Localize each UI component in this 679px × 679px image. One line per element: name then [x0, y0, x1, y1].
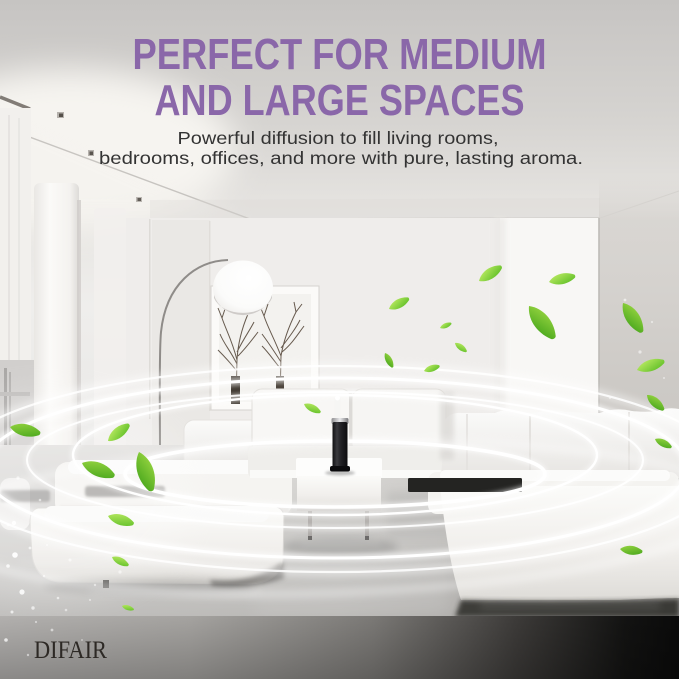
svg-text:AND LARGE SPACES: AND LARGE SPACES [155, 76, 525, 125]
svg-text:bedrooms, offices, and more wi: bedrooms, offices, and more with pure, l… [99, 148, 583, 168]
svg-text:Powerful diffusion to fill liv: Powerful diffusion to fill living rooms, [178, 128, 499, 148]
svg-text:PERFECT FOR MEDIUM: PERFECT FOR MEDIUM [133, 30, 547, 79]
svg-text:DIFAIR: DIFAIR [34, 637, 107, 664]
